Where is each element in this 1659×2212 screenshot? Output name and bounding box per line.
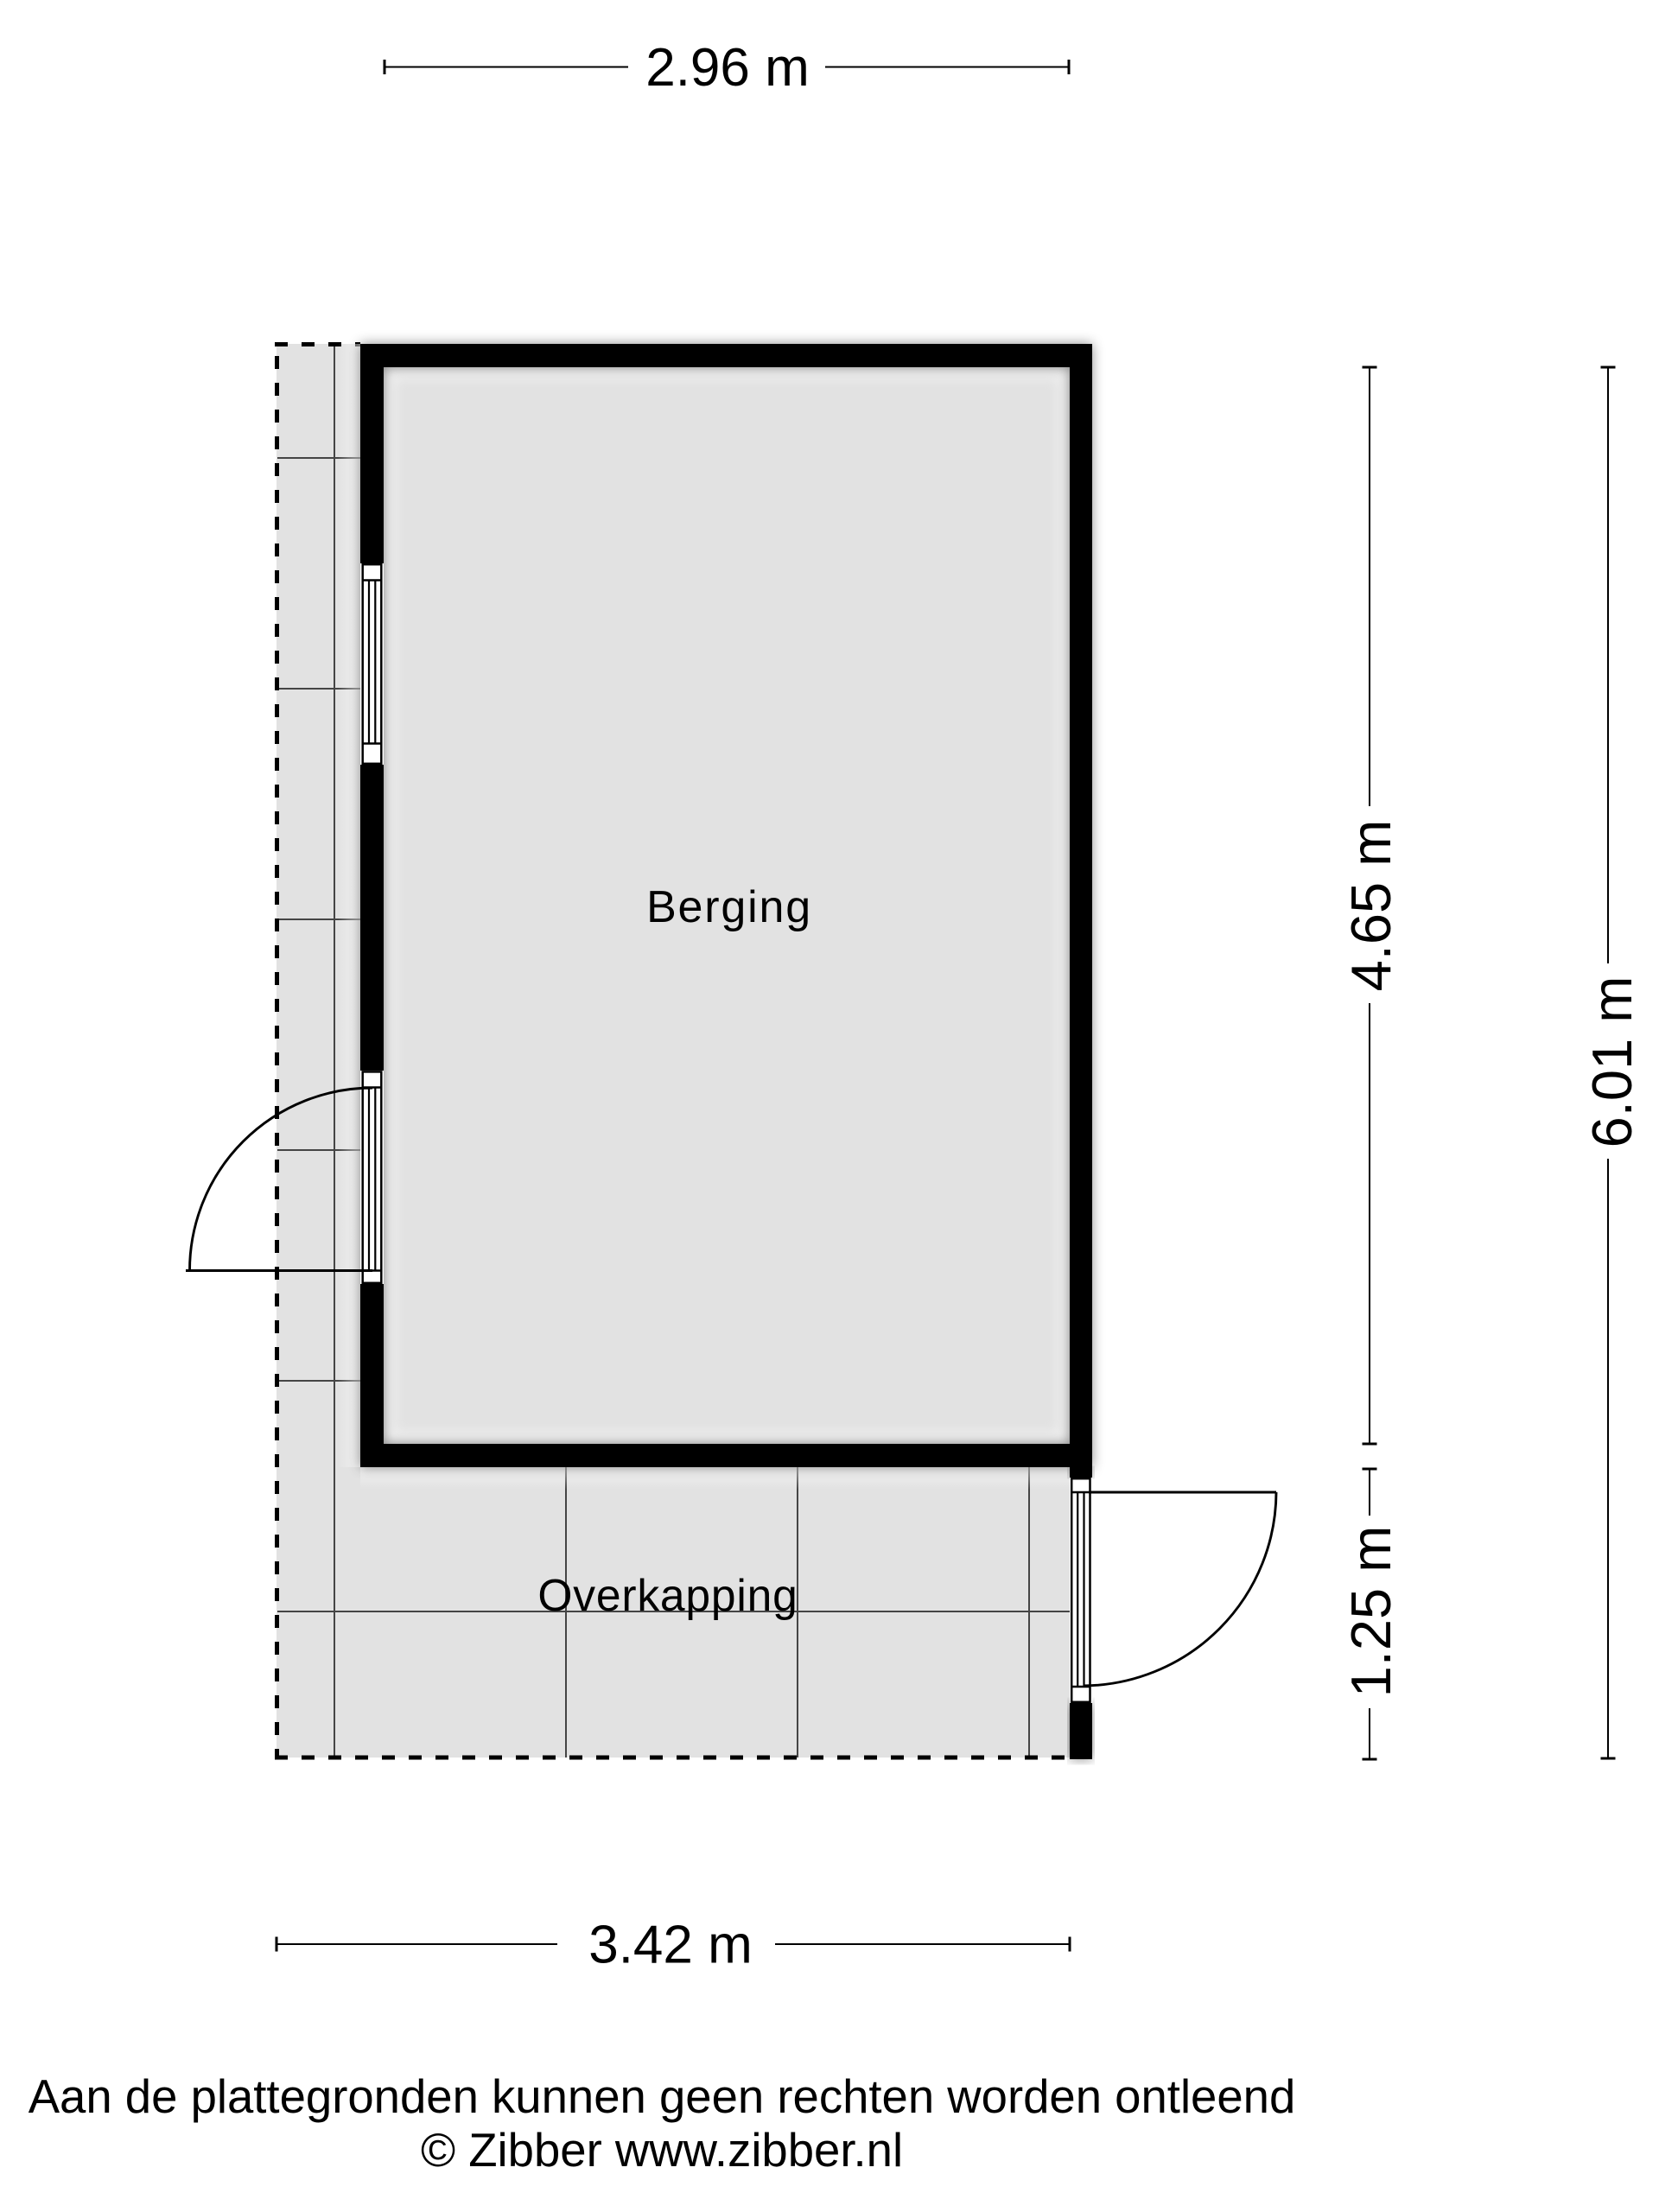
svg-text:4.65 m: 4.65 m bbox=[1339, 820, 1402, 992]
svg-text:3.42 m: 3.42 m bbox=[588, 1916, 753, 1975]
svg-text:Berging: Berging bbox=[646, 882, 812, 932]
svg-text:6.01 m: 6.01 m bbox=[1580, 976, 1643, 1148]
svg-text:1.25 m: 1.25 m bbox=[1339, 1526, 1402, 1698]
svg-text:© Zibber www.zibber.nl: © Zibber www.zibber.nl bbox=[421, 2124, 903, 2177]
svg-text:2.96 m: 2.96 m bbox=[645, 38, 810, 98]
svg-text:Aan de plattegronden kunnen ge: Aan de plattegronden kunnen geen rechten… bbox=[29, 2070, 1296, 2123]
svg-text:Overkapping: Overkapping bbox=[537, 1570, 798, 1620]
